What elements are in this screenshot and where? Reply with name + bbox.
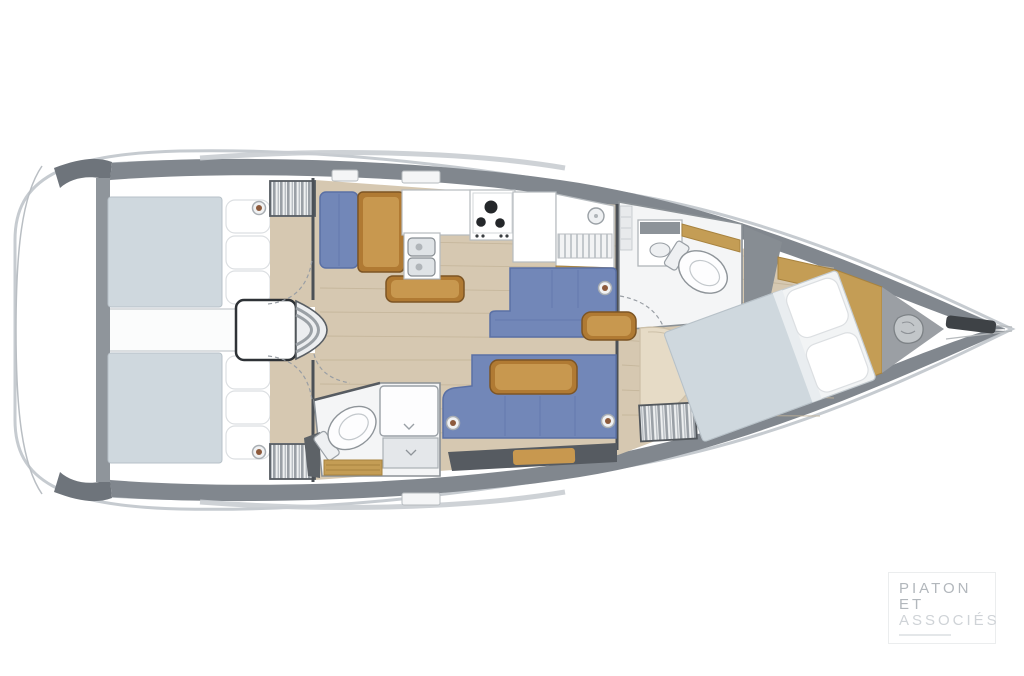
deck-hatch bbox=[402, 493, 440, 505]
galley-counter bbox=[402, 190, 472, 235]
locker-wood-insert bbox=[513, 448, 575, 465]
salon-table-top bbox=[495, 364, 572, 390]
stove-burner bbox=[485, 201, 498, 214]
porthole bbox=[253, 202, 266, 215]
deck-hatch bbox=[402, 171, 440, 183]
aft-cabin-port bbox=[108, 178, 315, 307]
porthole bbox=[447, 417, 460, 430]
brand-watermark: PIATON ET ASSOCIÉS bbox=[888, 572, 996, 644]
porthole bbox=[599, 282, 612, 295]
brand-line-3: ASSOCIÉS bbox=[899, 613, 995, 629]
stove-knob bbox=[505, 234, 508, 237]
stove-burner bbox=[495, 218, 505, 228]
hanging-wardrobe bbox=[270, 181, 315, 216]
double-bed-mattress bbox=[108, 197, 222, 307]
sink-drain bbox=[594, 214, 598, 218]
companionway-step-top bbox=[236, 300, 296, 360]
aft-cabin-starboard bbox=[108, 353, 315, 482]
pillow bbox=[226, 391, 270, 424]
hanging-wardrobe bbox=[639, 403, 697, 442]
fridge-worktop bbox=[513, 192, 556, 262]
floor-plan-drawing bbox=[0, 0, 1024, 676]
cabinet-top bbox=[391, 280, 459, 298]
walkway bbox=[110, 309, 236, 351]
yacht-floor-plan: PIATON ET ASSOCIÉS bbox=[0, 0, 1024, 676]
stove-knob bbox=[475, 234, 478, 237]
cabin-floor-strip bbox=[270, 217, 315, 307]
chart-table-top bbox=[363, 197, 399, 267]
porthole bbox=[253, 446, 266, 459]
brand-tagline bbox=[899, 634, 951, 636]
porthole bbox=[602, 415, 615, 428]
stove-knob bbox=[481, 234, 484, 237]
brand-line-1: PIATON bbox=[899, 581, 995, 597]
deck-hatch bbox=[332, 170, 358, 181]
sideboard-top bbox=[587, 316, 631, 336]
double-bed-mattress bbox=[108, 353, 222, 463]
washbasin-counter bbox=[640, 222, 680, 234]
aft-head bbox=[304, 383, 440, 478]
anchor-rode-coil bbox=[894, 315, 923, 344]
brand-line-2: ET bbox=[899, 597, 995, 613]
vanity-cabinet bbox=[383, 438, 438, 468]
draining-board bbox=[558, 234, 612, 258]
pillow bbox=[226, 236, 270, 269]
stove-burner bbox=[476, 217, 486, 227]
washbasin bbox=[650, 243, 670, 257]
sink-drain bbox=[416, 244, 423, 251]
stove-knob bbox=[499, 234, 502, 237]
cabin-floor-strip bbox=[270, 353, 315, 443]
sink-drain bbox=[416, 264, 423, 271]
head-floor-grate bbox=[324, 460, 382, 475]
